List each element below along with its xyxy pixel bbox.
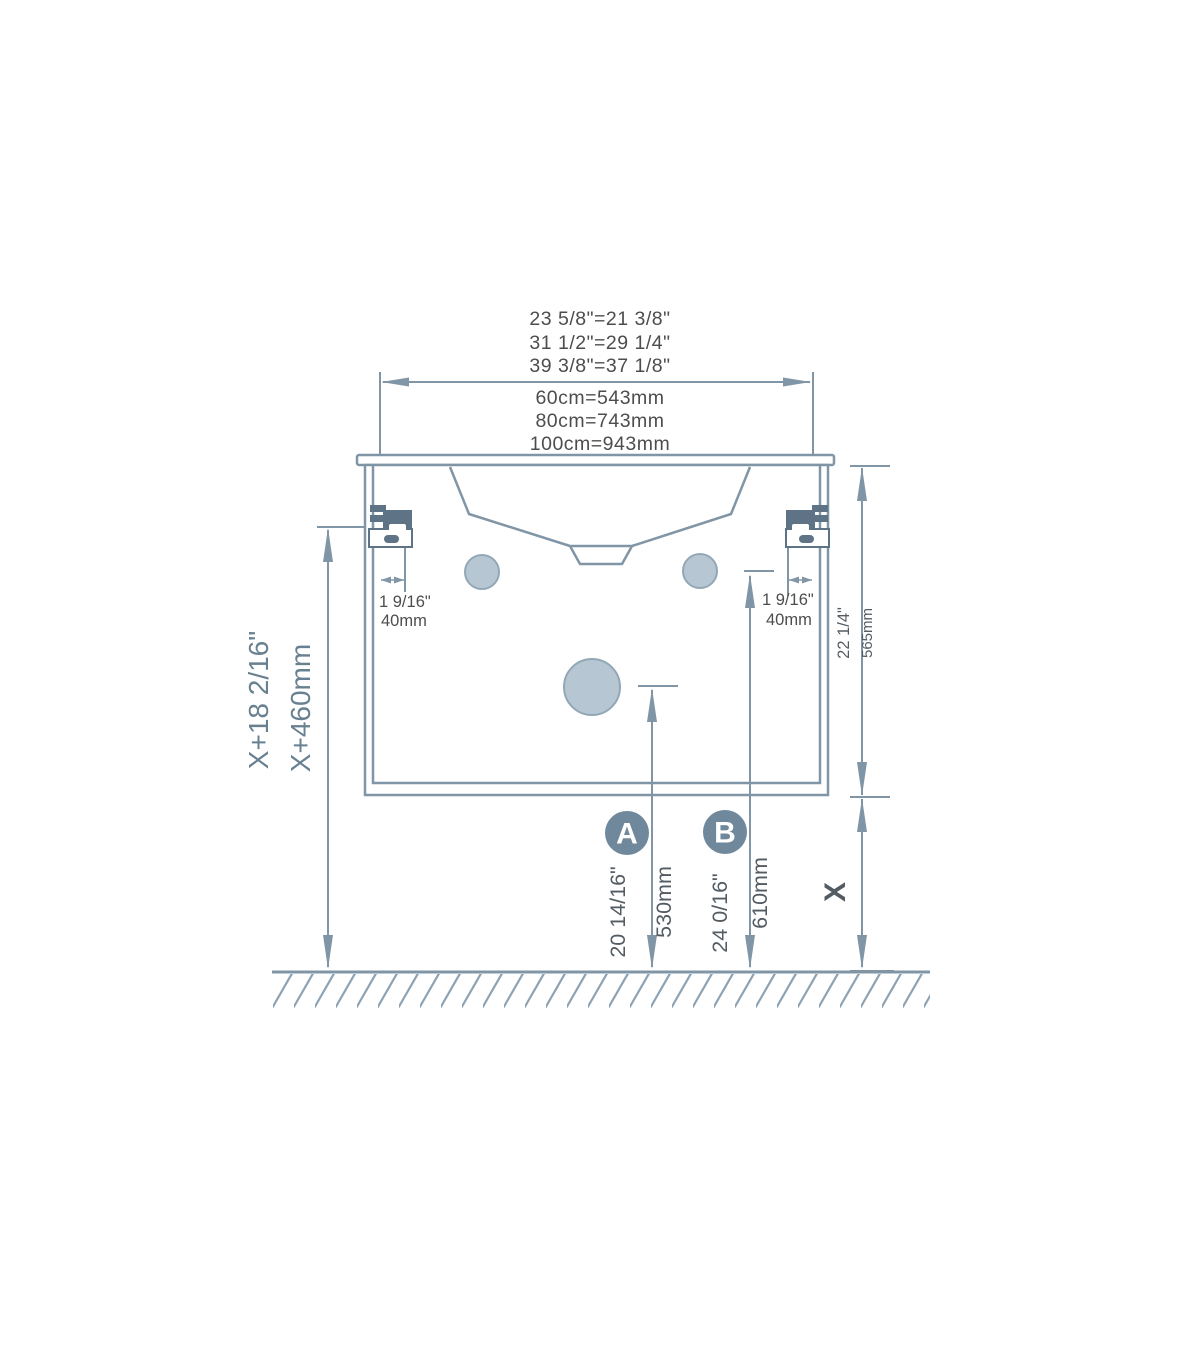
bracket-offset-left-metric: 40mm — [381, 612, 427, 630]
bracket-offset-left-inches: 1 9/16" — [379, 593, 431, 611]
faucet-hole-right — [683, 554, 717, 588]
mounting-height-metric: X+460mm — [285, 644, 316, 772]
arrow-up-icon — [323, 528, 333, 562]
width-label-metric-1: 60cm=543mm — [535, 387, 664, 409]
drain-hole — [564, 659, 620, 715]
floor-clearance-label: X — [819, 882, 852, 902]
cabinet-height-metric: 565mm — [859, 608, 876, 658]
faucet-height-metric: 610mm — [748, 857, 772, 929]
width-label-inches-1: 23 5/8"=21 3/8" — [529, 308, 670, 330]
bracket-offset-right-metric: 40mm — [766, 611, 812, 629]
width-label-metric-2: 80cm=743mm — [535, 410, 664, 432]
drain-height-inches: 20 14/16" — [606, 866, 630, 957]
width-label-metric-3: 100cm=943mm — [530, 433, 670, 455]
arrow-up-icon — [857, 467, 867, 501]
marker-b-letter: B — [714, 817, 736, 850]
width-arrow-right-icon — [783, 378, 811, 387]
arrow-down-icon — [857, 935, 867, 969]
diagram-page: 23 5/8"=21 3/8" 31 1/2"=29 1/4" 39 3/8"=… — [0, 0, 1200, 1372]
arrow-down-icon — [857, 762, 867, 796]
arrow-up-icon — [857, 798, 867, 832]
floor-hatching — [272, 974, 930, 1008]
vanity-installation-diagram: 23 5/8"=21 3/8" 31 1/2"=29 1/4" 39 3/8"=… — [0, 0, 1200, 1372]
cabinet-body — [365, 465, 828, 795]
faucet-height-inches: 24 0/16" — [708, 873, 732, 952]
width-label-inches-2: 31 1/2"=29 1/4" — [529, 332, 670, 354]
arrow-down-icon — [647, 935, 657, 969]
cabinet-height-group: 22 1/4" 565mm — [835, 466, 890, 797]
faucet-hole-left — [465, 555, 499, 589]
arrow-down-icon — [323, 935, 333, 969]
cabinet-height-inches: 22 1/4" — [835, 607, 853, 659]
floor-clearance-group: X — [819, 798, 894, 971]
arrow-down-icon — [745, 935, 755, 969]
mounting-height-inches: X+18 2/16" — [243, 631, 274, 769]
width-label-inches-3: 39 3/8"=37 1/8" — [529, 355, 670, 377]
mounting-height-group: X+18 2/16" X+460mm — [243, 527, 365, 969]
bracket-offset-right-inches: 1 9/16" — [762, 591, 814, 609]
marker-a-letter: A — [616, 818, 638, 851]
drain-height-metric: 530mm — [652, 866, 676, 938]
width-arrow-left-icon — [381, 378, 409, 387]
countertop — [357, 455, 834, 465]
